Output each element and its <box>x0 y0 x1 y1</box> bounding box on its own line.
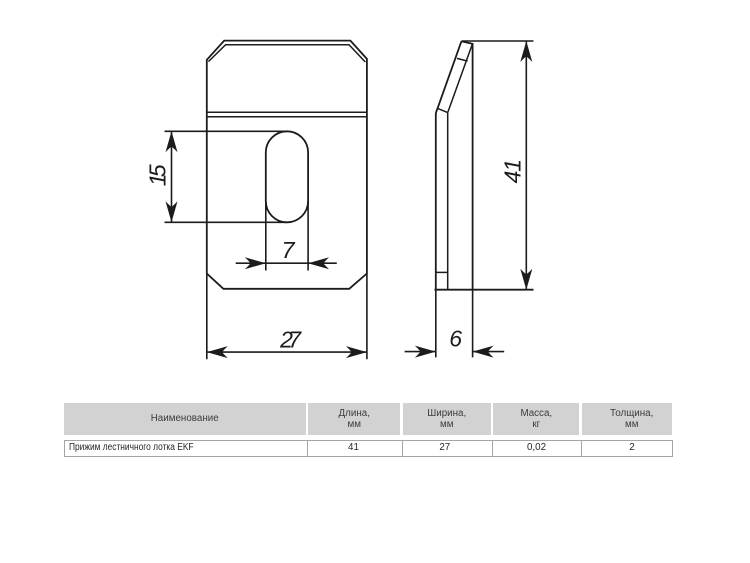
svg-text:7: 7 <box>281 237 295 263</box>
svg-text:6: 6 <box>449 325 462 351</box>
svg-text:41: 41 <box>500 159 526 184</box>
svg-text:27: 27 <box>279 326 302 352</box>
svg-text:15: 15 <box>144 164 170 186</box>
